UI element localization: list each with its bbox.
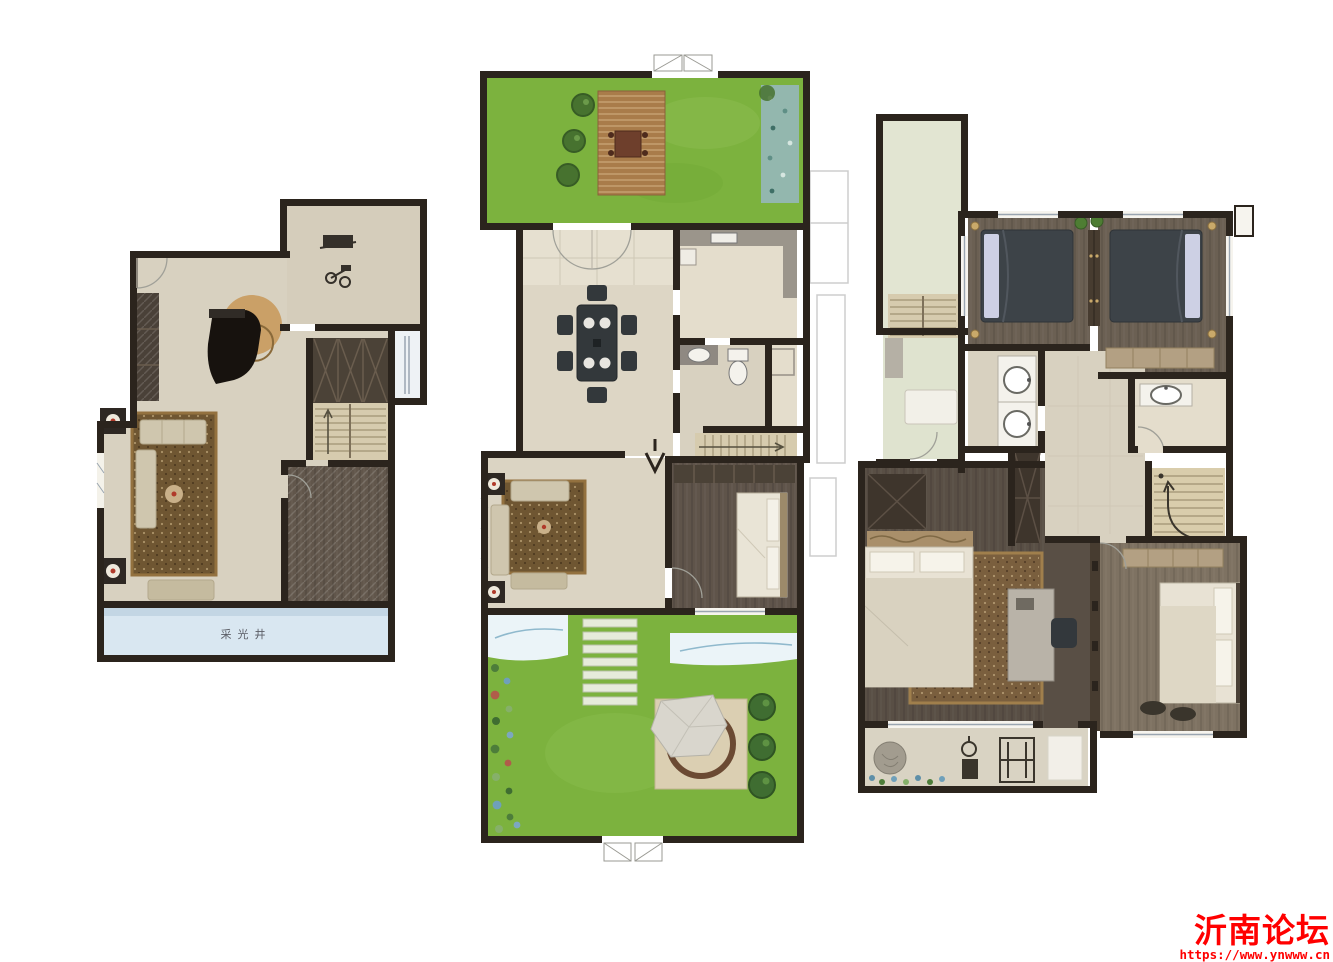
toilet-icon: [729, 361, 747, 385]
garden-gate-icon: [654, 55, 712, 71]
light-well: 采光井: [104, 608, 388, 655]
ground-floor-plan: [465, 53, 865, 871]
upper-floor-plan: [848, 106, 1263, 806]
gym-room-floor: [287, 206, 420, 324]
bay-window-recess: [395, 331, 420, 398]
storage-wardrobe: [313, 338, 388, 403]
sofa-icon: [140, 420, 206, 444]
sink-icon: [1004, 367, 1030, 393]
wood-deck: [598, 91, 665, 195]
closet-strip: [137, 293, 159, 401]
tree-icon: [749, 694, 775, 798]
pillow-icon: [1214, 588, 1232, 634]
lamp-icon: [971, 330, 979, 338]
lamp-icon: [971, 222, 979, 230]
bed-icon: [1160, 583, 1244, 703]
closet-divider: [1088, 230, 1100, 326]
bathroom1-fixtures: [998, 356, 1036, 448]
plant-icon: [1170, 707, 1196, 721]
bedroom1-suite: [971, 222, 1073, 338]
floor-plan-image: 采光井: [0, 0, 1333, 962]
pillow-icon: [1185, 234, 1200, 318]
sink-icon: [1004, 411, 1030, 437]
adjacent-unit-outline: [810, 171, 848, 556]
potted-tree-icon: [874, 742, 906, 774]
wardrobe-icon: [868, 474, 926, 529]
ground-floor-stairs: [695, 433, 797, 460]
garden-gate-icon: [604, 843, 662, 861]
mat-icon: [1048, 736, 1082, 780]
lounge-window-icon: [97, 453, 104, 508]
upper-main-stairs: [1152, 468, 1225, 543]
basement-floor-plan: 采光井: [88, 198, 434, 668]
watermark-title: 沂南论坛: [1179, 914, 1330, 947]
watermark: 沂南论坛 https://www.ynwww.cn: [1179, 914, 1330, 962]
pillow-icon: [870, 552, 914, 572]
bed-icon: [865, 547, 973, 687]
gazebo-icon: [651, 695, 747, 789]
deck-table-icon: [615, 131, 641, 157]
entry-tiles: [523, 230, 673, 285]
basement-bedroom: [288, 466, 388, 601]
light-well-label: 采光井: [221, 627, 272, 641]
plant-icon: [1140, 701, 1166, 715]
lamp-icon: [1208, 330, 1216, 338]
sink-icon: [688, 348, 710, 362]
pillow-icon: [920, 552, 964, 572]
headboard-icon: [867, 531, 973, 547]
sofa-icon: [511, 481, 569, 501]
bench-icon: [148, 580, 214, 600]
pebble-water-strip: [759, 85, 799, 203]
chaise-icon: [136, 450, 156, 528]
basement-stairs: [313, 403, 388, 460]
chaise-icon: [491, 505, 509, 575]
bed-icon: [737, 493, 787, 597]
bench-icon: [511, 573, 567, 589]
chair-icon: [1051, 618, 1077, 648]
kitchen-floor: [680, 230, 797, 338]
closet-divider: [1090, 543, 1100, 731]
lamp-icon: [1208, 222, 1216, 230]
watermark-url: https://www.ynwww.cn: [1179, 949, 1330, 962]
garden-steps: [583, 619, 637, 705]
south-garden: [488, 615, 797, 836]
bedroom-window-icon: [695, 608, 765, 615]
roof-garden: [487, 78, 803, 223]
pillow-icon: [984, 234, 999, 318]
pillow-icon: [1214, 640, 1232, 686]
pond-icon: [488, 615, 568, 661]
